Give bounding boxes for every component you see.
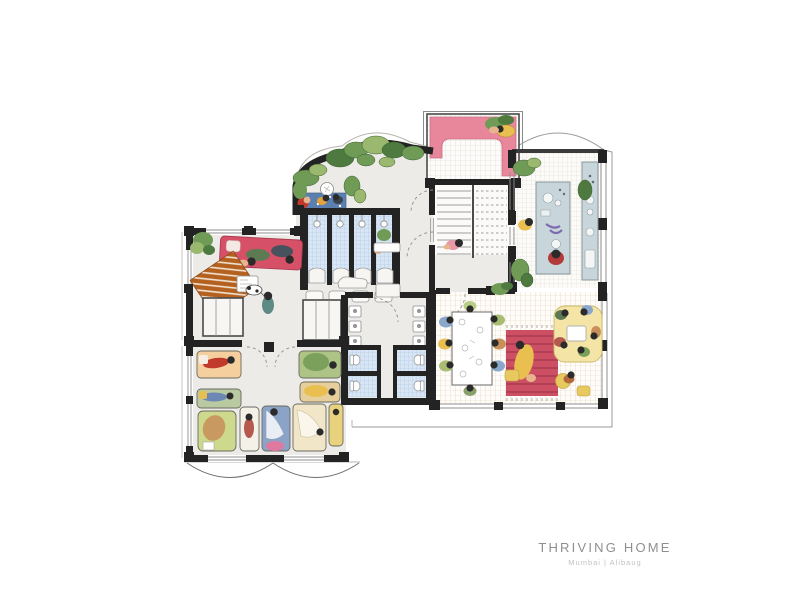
wardrobe-right: [303, 300, 341, 340]
kitchen-counter: [582, 162, 598, 280]
title-block: THRIVING HOME Mumbai | Alibaug: [535, 540, 675, 567]
project-subtitle: Mumbai | Alibaug: [535, 558, 675, 567]
hall-stool: [376, 284, 400, 297]
hall-bench: [338, 277, 367, 288]
red-rug: [505, 325, 558, 401]
garden-plant-small: [293, 181, 307, 199]
dining-table: [452, 312, 492, 385]
floor-plan-drawing: [0, 0, 800, 600]
yellow-lounge: [554, 305, 602, 362]
floor-plan-sheet: THRIVING HOME Mumbai | Alibaug: [0, 0, 800, 600]
garden-table: [321, 183, 334, 196]
wardrobe-left: [203, 298, 243, 336]
project-title: THRIVING HOME: [535, 540, 675, 555]
hall-console: [374, 243, 400, 252]
